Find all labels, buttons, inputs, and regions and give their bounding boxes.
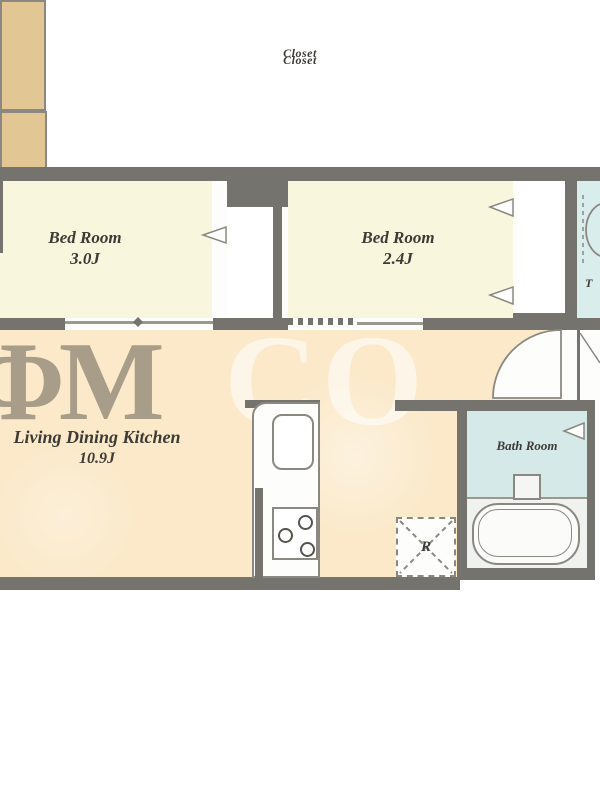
stove-burner-bottom-right [300, 542, 315, 557]
bathroom-interior: Bath Room [467, 411, 587, 568]
wall-mid-right [423, 318, 600, 330]
door-opening-bedroom-1 [212, 181, 227, 318]
washroom-strip [580, 330, 600, 400]
wall-under-closet-2 [513, 313, 577, 318]
wall-closet-1-right [273, 205, 282, 318]
room-bathroom: Bath Room [457, 400, 595, 580]
wall-mid-center [213, 318, 288, 330]
ldk-label: Living Dining Kitchen 10.9J [0, 426, 200, 469]
closet-2-label: Closet [0, 53, 600, 68]
toilet-label-fragment: T [585, 276, 600, 291]
window-gap-bedroom-1 [65, 318, 213, 330]
bedroom-1-name: Bed Room [0, 227, 170, 248]
stove-burner-top-right [298, 515, 313, 530]
bath-counter [513, 474, 541, 500]
wall-mid-left [0, 318, 65, 330]
wall-closet-2-right [565, 167, 577, 318]
bedroom-2-name: Bed Room [288, 227, 508, 248]
ldk-name: Living Dining Kitchen [0, 426, 200, 449]
wall-kitchen-stub [255, 488, 263, 578]
refrigerator-space: R [396, 517, 456, 577]
refrigerator-label: R [398, 539, 454, 556]
room-toilet [577, 181, 600, 318]
bedroom-2-label: Bed Room 2.4J [288, 227, 508, 270]
wall-hall-bottom [395, 400, 460, 411]
sliding-door-leaf-bedroom-2 [357, 322, 423, 325]
bedroom-1-area: 3.0J [0, 248, 170, 269]
stove-burner-left [278, 528, 293, 543]
kitchen-stove [272, 507, 318, 560]
window-bedroom-1 [65, 321, 213, 324]
wall-top-divider [227, 181, 288, 207]
sliding-door-track-bedroom-2 [288, 318, 357, 325]
kitchen-sink [272, 414, 314, 470]
bathtub-inner [478, 509, 572, 557]
bedroom-1-label: Bed Room 3.0J [0, 227, 170, 270]
bedroom-2-area: 2.4J [288, 248, 508, 269]
room-ldk-upper [0, 330, 577, 400]
wall-washroom-left [577, 318, 580, 400]
wall-top [0, 167, 600, 181]
ldk-area: 10.9J [0, 449, 200, 469]
wall-bottom [0, 577, 460, 590]
gap-closet-2 [513, 183, 518, 313]
bathtub [472, 503, 580, 565]
floor-plan-canvas: ΦM CO Closet Closet Bed Room 3.0J Bed Ro… [0, 0, 600, 800]
bathroom-label: Bath Room [467, 438, 587, 454]
